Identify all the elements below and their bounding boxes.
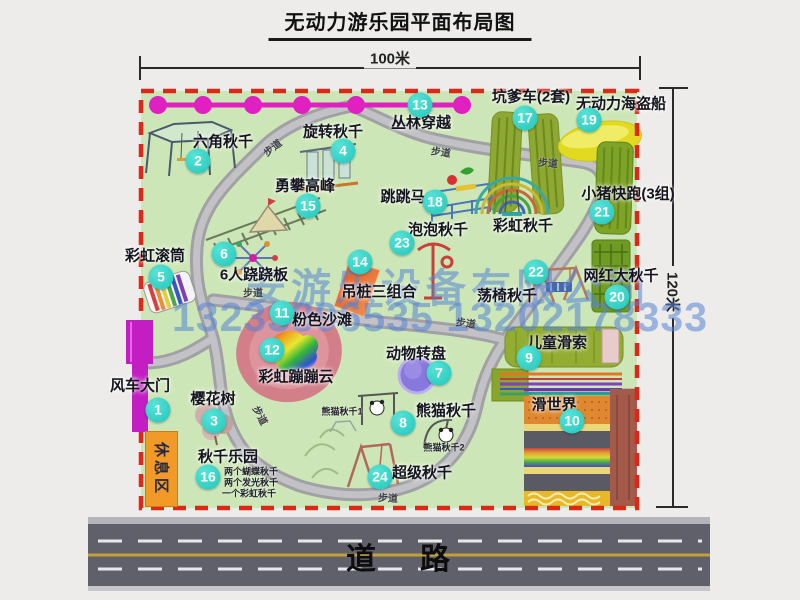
- item-number-22: 22: [524, 260, 549, 285]
- item-label-8: 熊猫秋千: [416, 400, 476, 421]
- item-note-16: 一个彩虹秋千: [222, 487, 276, 500]
- item-label-24: 超级秋千: [392, 462, 452, 483]
- walkway-label: 步道: [538, 154, 559, 170]
- item-label-4: 旋转秋千: [303, 121, 363, 142]
- item-number-2: 2: [186, 149, 211, 174]
- walkway-label: 步道: [378, 489, 399, 505]
- item-label-11: 粉色沙滩: [292, 309, 352, 330]
- item-label-1: 风车大门: [110, 375, 170, 396]
- item-label-5: 彩虹滚筒: [125, 245, 185, 266]
- item-label-15: 勇攀高峰: [275, 175, 335, 196]
- walkway-label: 步道: [243, 285, 263, 300]
- item-number-16: 16: [196, 465, 221, 490]
- item-number-15: 15: [296, 194, 321, 219]
- item-number-11: 11: [270, 301, 295, 326]
- item-number-12: 12: [260, 338, 285, 363]
- item-label-6: 6人跷跷板: [220, 264, 288, 285]
- item-number-24: 24: [368, 465, 393, 490]
- item-label-23: 泡泡秋千: [408, 219, 468, 240]
- item-label-22: 荡椅秋千: [477, 285, 537, 306]
- item-label-16: 秋千乐园: [198, 446, 258, 467]
- width-dimension-label: 100米: [364, 48, 416, 69]
- item-number-20: 20: [605, 285, 630, 310]
- item-number-13: 13: [408, 93, 433, 118]
- walkway-label: 步道: [455, 313, 477, 331]
- rest-area: 休息区: [145, 431, 178, 507]
- park-layout-map: 无动力游乐园平面布局图 100米 120米 安游乐设备有限公司 13233896…: [0, 0, 800, 600]
- item-number-18: 18: [423, 190, 448, 215]
- item-note-8: 熊猫秋千1: [321, 405, 362, 418]
- item-number-19: 19: [577, 108, 602, 133]
- item-label-3: 樱花树: [190, 388, 235, 409]
- item-number-7: 7: [427, 361, 452, 386]
- item-number-17: 17: [513, 106, 538, 131]
- page-title: 无动力游乐园平面布局图: [269, 6, 532, 41]
- walkway-label: 步道: [430, 142, 452, 160]
- item-note-8: 熊猫秋千2: [423, 441, 464, 454]
- item-number-6: 6: [212, 242, 237, 267]
- item-number-1: 1: [146, 398, 171, 423]
- item-number-23: 23: [390, 231, 415, 256]
- rest-area-label: 休息区: [151, 442, 172, 496]
- item-number-8: 8: [391, 411, 416, 436]
- road-label: 道路: [346, 534, 494, 578]
- item-label-20: 网红大秋千: [583, 265, 658, 286]
- zone-label: 彩虹秋千: [493, 215, 553, 236]
- item-number-4: 4: [331, 139, 356, 164]
- item-number-14: 14: [348, 250, 373, 275]
- item-number-21: 21: [590, 200, 615, 225]
- item-label-18: 跳跳马: [380, 186, 425, 207]
- item-number-5: 5: [149, 265, 174, 290]
- item-label-14: 吊桩三组合: [341, 281, 416, 302]
- item-number-3: 3: [202, 409, 227, 434]
- item-number-10: 10: [560, 409, 585, 434]
- item-label-17: 坑爹车(2套): [492, 86, 570, 107]
- item-number-9: 9: [517, 346, 542, 371]
- height-dimension-label: 120米: [663, 266, 684, 318]
- item-label-12: 彩虹蹦蹦云: [258, 366, 333, 387]
